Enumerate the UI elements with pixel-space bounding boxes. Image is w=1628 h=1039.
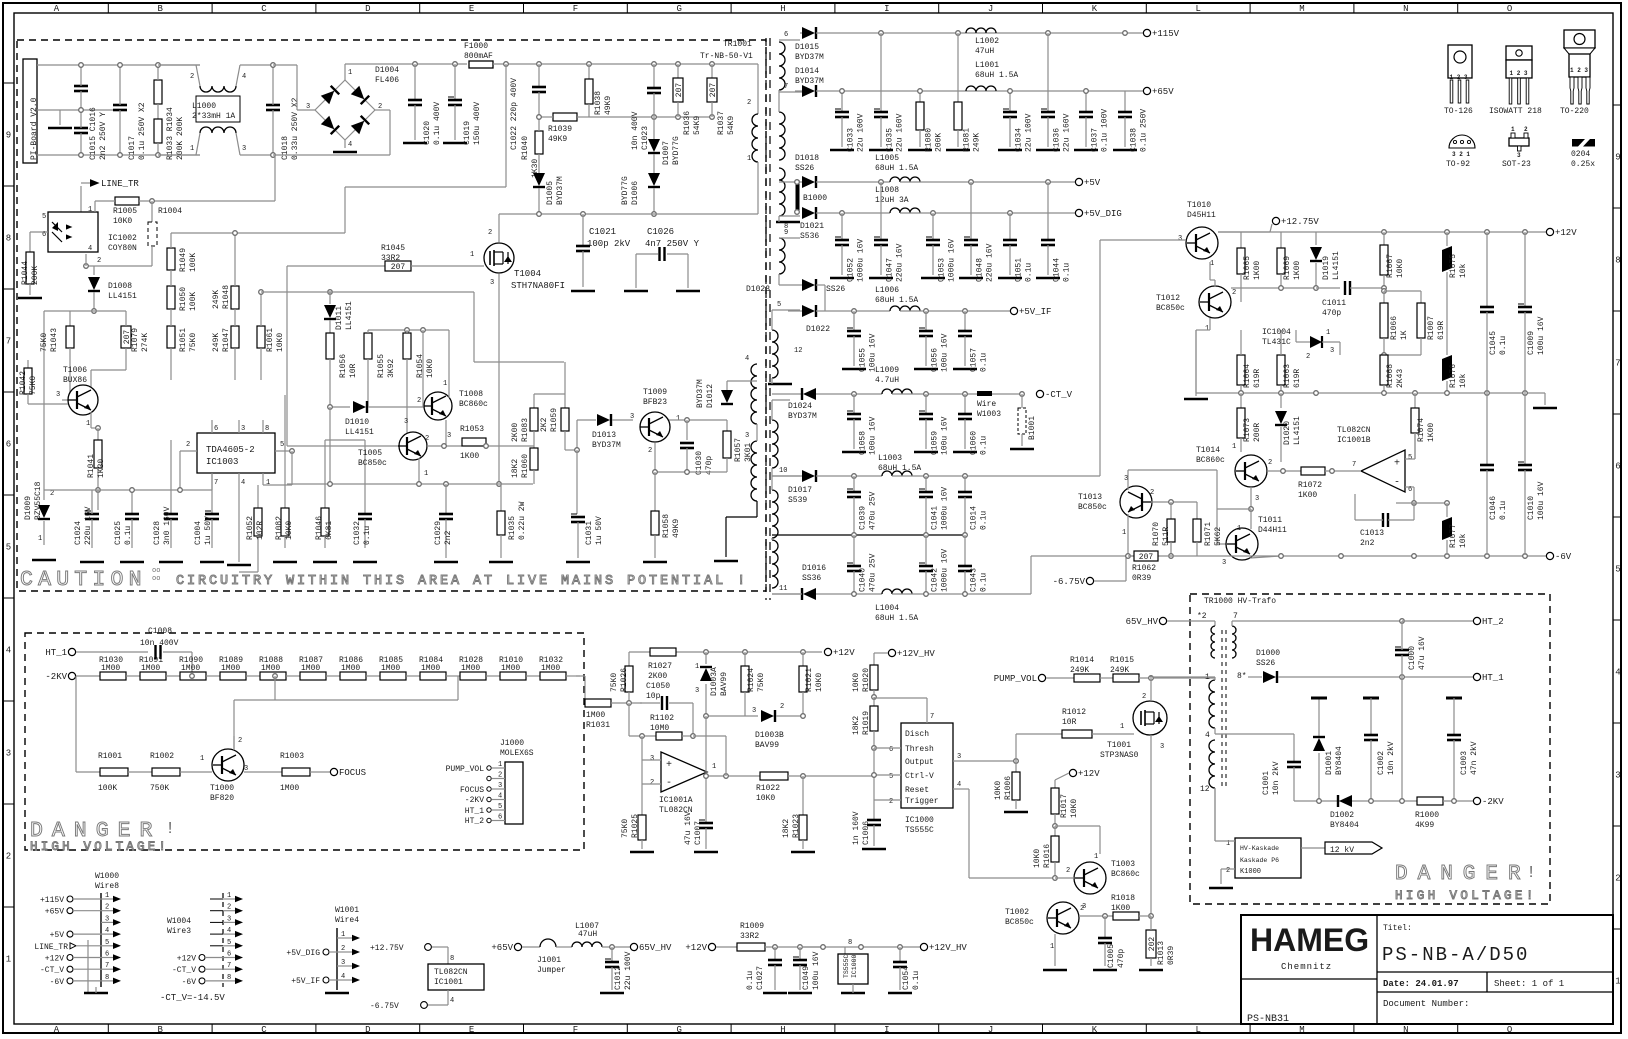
svg-text:0.1u: 0.1u [1025, 263, 1034, 282]
svg-text:D1024: D1024 [788, 402, 812, 411]
svg-text:BYD77G: BYD77G [621, 176, 630, 205]
svg-text:4K99: 4K99 [1415, 821, 1434, 830]
svg-text:6: 6 [6, 440, 11, 450]
svg-text:3: 3 [241, 425, 245, 433]
svg-text:C1059: C1059 [931, 431, 940, 455]
svg-text:1K00: 1K00 [1111, 904, 1130, 913]
svg-text:2: 2 [238, 737, 242, 745]
svg-text:1: 1 [200, 755, 204, 763]
svg-text:+12V: +12V [685, 943, 707, 953]
svg-text:C1003: C1003 [1460, 751, 1469, 775]
svg-text:L1005: L1005 [875, 154, 899, 163]
svg-text:0.1u: 0.1u [1499, 501, 1508, 520]
svg-text:D: D [365, 4, 370, 14]
svg-text:BC850c: BC850c [1156, 304, 1185, 313]
svg-text:Trigger: Trigger [905, 797, 939, 806]
svg-text:10n 2kV: 10n 2kV [1387, 741, 1396, 775]
svg-text:C1043: C1043 [970, 568, 979, 592]
svg-text:+5V: +5V [50, 931, 65, 940]
svg-text:IC1001: IC1001 [434, 978, 463, 987]
svg-text:1: 1 [1205, 325, 1209, 333]
svg-text:10K0: 10K0 [756, 794, 775, 803]
svg-text:75K0: 75K0 [29, 376, 38, 395]
svg-text:C1019: C1019 [463, 121, 472, 145]
svg-text:C1007: C1007 [694, 821, 703, 845]
svg-text:IC1003: IC1003 [206, 457, 238, 467]
svg-text:R1051: R1051 [179, 328, 188, 352]
svg-text:+65V: +65V [1152, 87, 1174, 97]
svg-text:3: 3 [6, 749, 11, 759]
svg-text:R1033 R1034: R1033 R1034 [166, 107, 175, 160]
svg-text:L: L [1195, 1025, 1200, 1035]
svg-text:D1003A: D1003A [710, 667, 719, 696]
svg-text:HT_2: HT_2 [1482, 617, 1504, 627]
svg-text:10R: 10R [1062, 718, 1077, 727]
svg-text:BAV99: BAV99 [755, 741, 779, 750]
svg-text:R1074: R1074 [1417, 418, 1426, 442]
svg-text:C1005: C1005 [1107, 944, 1116, 968]
svg-text:3: 3 [490, 279, 494, 287]
svg-text:249K: 249K [973, 133, 982, 152]
svg-text:1: 1 [1122, 529, 1126, 537]
svg-text:B1000: B1000 [803, 194, 827, 203]
svg-text:10K0: 10K0 [276, 333, 285, 352]
svg-text:IC1004: IC1004 [1262, 328, 1291, 337]
svg-text:1000u 16V: 1000u 16V [948, 239, 957, 282]
svg-text:C1013: C1013 [1360, 529, 1384, 538]
svg-text:G: G [676, 4, 681, 14]
svg-text:MOLEX6S: MOLEX6S [500, 749, 534, 758]
svg-text:7: 7 [784, 83, 788, 91]
svg-text:T1014: T1014 [1196, 446, 1220, 455]
svg-text:-2KV: -2KV [45, 672, 67, 682]
svg-text:4: 4 [88, 245, 92, 253]
svg-text:49K9: 49K9 [672, 519, 681, 538]
svg-text:4: 4 [1615, 668, 1620, 678]
svg-text:249K: 249K [1070, 666, 1089, 675]
svg-text:100K: 100K [98, 784, 117, 793]
svg-text:10k: 10k [1459, 263, 1468, 278]
svg-text:R1018: R1018 [1111, 894, 1135, 903]
svg-text:0204: 0204 [1571, 150, 1590, 159]
svg-text:R1064: R1064 [1243, 364, 1252, 388]
svg-text:C1058: C1058 [859, 431, 868, 455]
svg-text:1: 1 [498, 761, 502, 769]
svg-text:68uH 1.5A: 68uH 1.5A [875, 614, 918, 623]
svg-text:220u 16V: 220u 16V [986, 243, 995, 282]
svg-text:C1034: C1034 [1015, 128, 1024, 152]
svg-text:D1009: D1009 [24, 496, 33, 520]
svg-text:+5V: +5V [1084, 178, 1101, 188]
svg-text:R1020: R1020 [862, 668, 871, 692]
svg-text:1K00: 1K00 [1298, 491, 1317, 500]
svg-text:T1009: T1009 [643, 388, 667, 397]
svg-text:75K0: 75K0 [610, 673, 619, 692]
svg-text:619R: 619R [1253, 369, 1262, 388]
svg-text:R1061: R1061 [266, 328, 275, 352]
svg-text:PS-NB-A/D50: PS-NB-A/D50 [1382, 944, 1529, 966]
svg-text:Sheet: 1 of 1: Sheet: 1 of 1 [1494, 979, 1564, 989]
svg-text:2n2: 2n2 [1360, 539, 1375, 548]
svg-text:SS36: SS36 [802, 574, 821, 583]
svg-text:200K 200K: 200K 200K [176, 117, 185, 160]
svg-text:1M00: 1M00 [381, 664, 400, 673]
svg-text:5K62: 5K62 [1214, 527, 1223, 546]
svg-text:12: 12 [794, 347, 802, 355]
svg-text:BF820: BF820 [210, 794, 234, 803]
svg-text:C1012: C1012 [614, 966, 623, 990]
svg-text:oo: oo [152, 575, 160, 583]
svg-text:H: H [780, 4, 785, 14]
svg-text:C1038: C1038 [1130, 128, 1139, 152]
svg-text:470u 25V: 470u 25V [869, 491, 878, 530]
svg-text:2: 2 [498, 772, 502, 780]
svg-text:3: 3 [447, 432, 451, 440]
svg-text:47n 2kV: 47n 2kV [1470, 741, 1479, 775]
svg-text:+12V: +12V [833, 648, 855, 658]
svg-text:C1000: C1000 [1408, 646, 1417, 670]
svg-text:R1060: R1060 [521, 454, 530, 478]
svg-text:4: 4 [348, 141, 352, 149]
svg-text:8: 8 [848, 939, 852, 947]
svg-text:2: 2 [97, 257, 101, 265]
svg-text:L: L [1195, 4, 1200, 14]
svg-text:C1053: C1053 [938, 258, 947, 282]
svg-text:10K0: 10K0 [113, 217, 132, 226]
svg-text:3: 3 [650, 755, 654, 763]
svg-text:207: 207 [675, 83, 684, 98]
svg-text:D1023: D1023 [746, 285, 770, 294]
svg-text:5: 5 [280, 441, 284, 449]
svg-text:2K00: 2K00 [648, 672, 667, 681]
svg-text:3: 3 [1615, 771, 1620, 781]
svg-text:54K9: 54K9 [693, 116, 702, 135]
svg-text:TL431C: TL431C [1262, 338, 1291, 347]
svg-text:47u 16V: 47u 16V [1418, 636, 1427, 670]
svg-text:18K2: 18K2 [852, 716, 861, 735]
svg-text:3: 3 [1178, 235, 1182, 243]
svg-text:T1002: T1002 [1005, 908, 1029, 917]
svg-text:6: 6 [784, 31, 788, 39]
svg-text:1: 1 [695, 663, 699, 671]
svg-text:D1017: D1017 [788, 486, 812, 495]
svg-text:-: - [1394, 478, 1400, 489]
svg-text:S539: S539 [788, 496, 807, 505]
svg-text:HT_1: HT_1 [45, 648, 67, 658]
svg-text:+12V: +12V [45, 955, 64, 964]
svg-text:K1000: K1000 [1240, 868, 1261, 876]
svg-text:D1011: D1011 [335, 306, 344, 330]
svg-text:100u 16V: 100u 16V [941, 416, 950, 455]
svg-text:R1015: R1015 [1110, 656, 1134, 665]
svg-text:Tr-NB-50-V1: Tr-NB-50-V1 [700, 52, 753, 61]
svg-text:6: 6 [889, 746, 893, 754]
svg-text:0.33u 250V X2: 0.33u 250V X2 [291, 97, 300, 160]
svg-text:7: 7 [6, 337, 11, 347]
svg-text:3: 3 [498, 782, 502, 790]
svg-text:10K0: 10K0 [1396, 259, 1405, 278]
svg-text:2K00: 2K00 [511, 423, 520, 442]
svg-text:1: 1 [1511, 126, 1515, 133]
svg-text:C1004: C1004 [194, 521, 203, 545]
svg-text:5: 5 [777, 301, 781, 309]
svg-text:R1016: R1016 [1043, 844, 1052, 868]
svg-text:T1001: T1001 [1107, 741, 1131, 750]
svg-text:0R39: 0R39 [1167, 946, 1176, 965]
svg-text:7: 7 [1615, 359, 1620, 369]
svg-text:PS-NB31: PS-NB31 [1247, 1014, 1289, 1025]
svg-text:2*33mH 1A: 2*33mH 1A [192, 112, 235, 121]
svg-text:BC850c: BC850c [1078, 503, 1107, 512]
svg-text:N: N [1403, 1025, 1408, 1035]
svg-text:8: 8 [1615, 256, 1620, 266]
svg-text:R1036: R1036 [683, 111, 692, 135]
svg-text:1 2 3: 1 2 3 [1570, 67, 1588, 74]
svg-text:C1018: C1018 [281, 136, 290, 160]
svg-text:C1054: C1054 [902, 966, 911, 990]
svg-text:TS555C: TS555C [905, 826, 934, 835]
svg-text:R1007: R1007 [1427, 316, 1436, 340]
svg-text:R1059: R1059 [550, 408, 559, 432]
svg-text:C1006: C1006 [862, 821, 871, 845]
svg-text:LL4151: LL4151 [345, 301, 354, 330]
svg-text:TS555C: TS555C [843, 954, 850, 978]
svg-text:D1007: D1007 [662, 141, 671, 165]
svg-text:R1081: R1081 [963, 128, 972, 152]
svg-text:SS26: SS26 [1256, 659, 1275, 668]
svg-text:R1054: R1054 [416, 354, 425, 378]
svg-text:0R39: 0R39 [1132, 574, 1151, 583]
svg-text:1: 1 [424, 470, 428, 478]
svg-text:C1055: C1055 [859, 348, 868, 372]
svg-text:C1021: C1021 [589, 227, 616, 237]
svg-text:2: 2 [889, 798, 893, 806]
svg-text:249K: 249K [212, 333, 221, 352]
svg-text:1: 1 [1210, 260, 1214, 268]
svg-text:150u 400V: 150u 400V [473, 102, 482, 145]
svg-text:+12.75V: +12.75V [1281, 217, 1319, 227]
svg-text:R1009: R1009 [740, 922, 764, 931]
svg-text:FL406: FL406 [375, 76, 399, 85]
svg-text:+65V: +65V [491, 943, 513, 953]
svg-text:IC1000: IC1000 [905, 816, 934, 825]
svg-text:HT_2: HT_2 [465, 817, 484, 826]
svg-text:C1035: C1035 [886, 128, 895, 152]
svg-text:R1049: R1049 [179, 248, 188, 272]
svg-text:HV-Kaskade: HV-Kaskade [1240, 845, 1279, 852]
svg-text:470u 25V: 470u 25V [869, 553, 878, 592]
svg-text:BYD37M: BYD37M [696, 379, 705, 408]
svg-text:33R2: 33R2 [740, 932, 759, 941]
svg-text:1M00: 1M00 [461, 664, 480, 673]
svg-text:207: 207 [391, 263, 406, 272]
svg-text:1M00: 1M00 [501, 664, 520, 673]
svg-text:75K0: 75K0 [621, 819, 630, 838]
svg-text:10R: 10R [349, 363, 358, 378]
svg-text:8*: 8* [1237, 672, 1247, 681]
svg-text:C1046: C1046 [1489, 496, 1498, 520]
svg-text:T1005: T1005 [358, 449, 382, 458]
svg-text:0.1u 250V X2: 0.1u 250V X2 [138, 102, 147, 160]
svg-text:L1002: L1002 [975, 37, 999, 46]
svg-text:2: 2 [1150, 489, 1154, 497]
svg-text:54K9: 54K9 [727, 116, 736, 135]
svg-text:D1010: D1010 [345, 418, 369, 427]
svg-text:T1013: T1013 [1078, 493, 1102, 502]
svg-text:+115V: +115V [1152, 29, 1180, 39]
svg-text:R1041: R1041 [87, 454, 96, 478]
svg-text:-6.75V: -6.75V [1053, 577, 1086, 587]
svg-text:5: 5 [42, 213, 46, 221]
svg-text:A: A [54, 4, 60, 14]
svg-text:R1003: R1003 [280, 752, 304, 761]
svg-text:C1036: C1036 [1053, 128, 1062, 152]
svg-text:R1050: R1050 [179, 287, 188, 311]
svg-text:1u 50V: 1u 50V [204, 516, 213, 545]
svg-text:100u 16V: 100u 16V [941, 333, 950, 372]
svg-text:LINE_TR: LINE_TR [101, 179, 139, 189]
svg-text:1: 1 [712, 763, 716, 771]
svg-text:PUMP_VOL: PUMP_VOL [994, 674, 1037, 684]
svg-text:D1021: D1021 [800, 222, 824, 231]
svg-text:+: + [1394, 459, 1400, 470]
svg-text:TO-92: TO-92 [1446, 160, 1470, 169]
svg-text:10: 10 [779, 467, 787, 475]
svg-text:9: 9 [784, 229, 788, 237]
svg-text:3: 3 [695, 687, 699, 695]
svg-text:249K: 249K [212, 290, 221, 309]
svg-text:1: 1 [1094, 853, 1098, 861]
svg-text:R1037: R1037 [717, 111, 726, 135]
svg-text:+12V: +12V [1078, 769, 1100, 779]
svg-text:R1066: R1066 [1390, 316, 1399, 340]
svg-text:65V_HV: 65V_HV [639, 943, 672, 953]
svg-text:+115V: +115V [40, 896, 64, 905]
svg-text:R1079: R1079 [131, 328, 140, 352]
svg-text:TO-126: TO-126 [1444, 107, 1473, 116]
svg-text:249K: 249K [1110, 666, 1129, 675]
svg-text:202: 202 [1148, 937, 1157, 952]
svg-text:C1030: C1030 [695, 451, 704, 475]
svg-text:R1025: R1025 [631, 814, 640, 838]
svg-text:D1008: D1008 [108, 282, 132, 291]
svg-text:2K43: 2K43 [1396, 369, 1405, 388]
svg-text:33R2: 33R2 [381, 254, 400, 263]
svg-text:R1043: R1043 [50, 328, 59, 352]
svg-text:Reset: Reset [905, 786, 929, 795]
svg-text:LL4151: LL4151 [108, 292, 137, 301]
svg-text:BUX86: BUX86 [63, 376, 87, 385]
svg-text:C1027: C1027 [756, 966, 765, 990]
svg-text:R1040: R1040 [521, 136, 530, 160]
svg-text:J: J [988, 1025, 993, 1035]
svg-text:C1009: C1009 [1527, 331, 1536, 355]
svg-text:3: 3 [630, 413, 634, 421]
svg-text:22u 160V: 22u 160V [1063, 113, 1072, 152]
svg-text:C1022 220p 400V: C1022 220p 400V [510, 78, 519, 150]
svg-text:2: 2 [780, 703, 784, 711]
svg-text:10k: 10k [1459, 533, 1468, 548]
svg-text:C1010: C1010 [1527, 496, 1536, 520]
svg-text:R1042: R1042 [19, 371, 28, 395]
svg-text:Ctrl-V: Ctrl-V [905, 772, 934, 781]
svg-text:1M00: 1M00 [101, 664, 120, 673]
svg-text:C1033: C1033 [847, 128, 856, 152]
svg-text:C1032: C1032 [353, 521, 362, 545]
svg-text:2K2: 2K2 [540, 417, 549, 432]
svg-text:7: 7 [1352, 461, 1356, 469]
svg-text:R1031: R1031 [586, 721, 610, 730]
svg-text:511R: 511R [1162, 527, 1171, 546]
svg-text:FOCUS: FOCUS [460, 786, 484, 795]
svg-text:R1039: R1039 [548, 125, 572, 134]
svg-text:O: O [1507, 4, 1512, 14]
svg-text:10K0: 10K0 [426, 359, 435, 378]
svg-text:L1000: L1000 [192, 102, 216, 111]
svg-text:0.1u 100V: 0.1u 100V [1101, 109, 1110, 152]
svg-text:100u 16V: 100u 16V [869, 416, 878, 455]
svg-text:R1075: R1075 [1449, 254, 1458, 278]
svg-text:4: 4 [6, 646, 11, 656]
svg-text:R1022: R1022 [756, 784, 780, 793]
svg-text:Document Number:: Document Number: [1383, 999, 1469, 1009]
svg-text:3: 3 [404, 418, 408, 426]
svg-text:2: 2 [747, 99, 751, 107]
svg-text:3: 3 [1330, 347, 1334, 355]
svg-text:C1014: C1014 [970, 506, 979, 530]
svg-text:1K00: 1K00 [460, 452, 479, 461]
svg-text:C1051: C1051 [1015, 258, 1024, 282]
svg-text:L1003: L1003 [878, 454, 902, 463]
svg-text:*2: *2 [1197, 612, 1207, 621]
svg-text:HT_1: HT_1 [465, 807, 484, 816]
svg-text:6: 6 [1615, 462, 1620, 472]
svg-text:1M00: 1M00 [421, 664, 440, 673]
svg-text:220u 16V: 220u 16V [896, 243, 905, 282]
svg-text:R1000: R1000 [1415, 811, 1439, 820]
svg-text:C1056: C1056 [931, 348, 940, 372]
svg-text:+12V: +12V [1555, 228, 1577, 238]
svg-text:Jumper: Jumper [537, 966, 566, 975]
svg-text:CAUTION: CAUTION [20, 568, 147, 592]
svg-text:BYD37M: BYD37M [795, 77, 824, 86]
svg-text:HIGH VOLTAGE!: HIGH VOLTAGE! [1395, 889, 1537, 903]
svg-text:Disch: Disch [905, 730, 929, 739]
svg-text:D1020: D1020 [1283, 421, 1292, 445]
svg-text:HAMEG: HAMEG [1250, 922, 1369, 958]
svg-text:BC850c: BC850c [1005, 918, 1034, 927]
svg-text:+65V: +65V [45, 908, 64, 917]
svg-text:0.1u: 0.1u [980, 511, 989, 530]
svg-text:470p: 470p [1117, 949, 1126, 968]
svg-text:1: 1 [747, 155, 751, 163]
svg-text:49K9: 49K9 [548, 135, 567, 144]
svg-text:!: ! [165, 820, 175, 839]
svg-text:5: 5 [1615, 565, 1620, 575]
svg-text:COY80N: COY80N [108, 244, 137, 253]
svg-text:Output: Output [905, 758, 934, 767]
svg-text:CIRCUITRY WITHIN THIS AREA AT: CIRCUITRY WITHIN THIS AREA AT LIVE MAINS… [176, 574, 748, 589]
svg-text:R1077: R1077 [1449, 524, 1458, 548]
svg-text:10K0: 10K0 [1070, 799, 1079, 818]
svg-text:4: 4 [957, 781, 961, 789]
svg-text:3: 3 [745, 432, 749, 440]
svg-text:18K2: 18K2 [782, 819, 791, 838]
svg-text:F: F [573, 4, 578, 14]
svg-text:1K30: 1K30 [97, 459, 106, 478]
svg-text:274K: 274K [141, 333, 150, 352]
svg-text:HT_1: HT_1 [1482, 673, 1504, 683]
